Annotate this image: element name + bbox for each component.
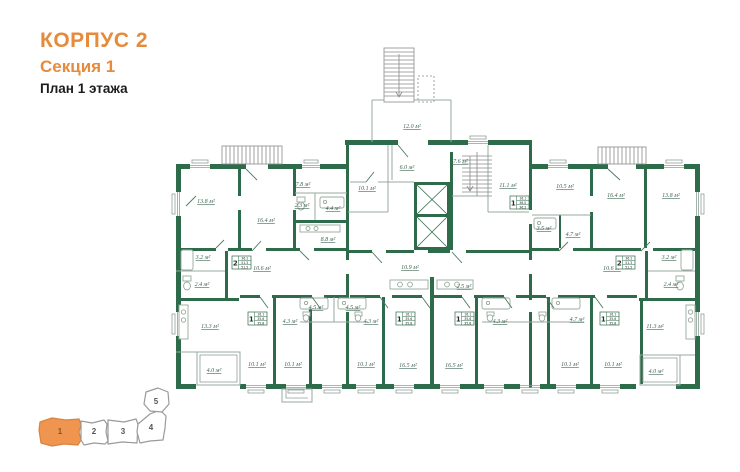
room-area-label: 4.5 м² — [309, 304, 324, 311]
entrance-ramp — [418, 76, 434, 102]
apartment-area-value: 51.5 — [241, 265, 248, 269]
room-area-label: 10.1 м² — [248, 362, 266, 368]
apartment-type-number: 1 — [249, 316, 254, 324]
room-area-label: 13.8 м² — [197, 199, 215, 205]
room-area-label: 4.7 м² — [570, 316, 585, 323]
apartment-area-value: 35.8 — [609, 321, 616, 325]
room-area-label: 2.4 м² — [195, 281, 210, 288]
apartment-area-value: 36.2 — [519, 205, 526, 209]
room-area-label: 10.6 м² — [253, 266, 271, 272]
door-swings — [186, 145, 650, 472]
apartment-tag[interactable]: 236.251.351.5 — [616, 256, 635, 269]
apartment-tag[interactable]: 116.135.635.8 — [396, 312, 415, 325]
apartment-tag[interactable]: 116.135.635.8 — [248, 312, 267, 325]
minimap-section-5-label: 5 — [154, 397, 159, 406]
apartment-type-number: 1 — [397, 316, 402, 324]
room-area-label: 11.3 м² — [646, 324, 663, 330]
room-area-label: 4.3 м² — [493, 318, 508, 325]
room-area-label: 16.4 м² — [257, 217, 275, 224]
floor-plan-page: КОРПУС 2 Секция 1 План 1 этажа — [0, 0, 740, 472]
left-entrance-stairs — [222, 146, 282, 164]
minimap: 1 2 3 4 5 — [39, 388, 169, 446]
room-area-label: 7.8 м² — [296, 182, 311, 188]
room-area-label: 8.8 м² — [321, 237, 336, 243]
room-area-label: 2.4 м² — [664, 281, 679, 288]
apartment-type-number: 2 — [233, 260, 238, 268]
room-area-label: 10.1 м² — [604, 362, 622, 368]
apartment-area-value: 35.8 — [405, 321, 412, 325]
room-area-label: 12.0 м² — [403, 124, 421, 130]
room-area-label: 4.4 м² — [326, 205, 341, 212]
room-area-label: 2.5 м² — [457, 284, 472, 290]
room-area-label: 4.3 м² — [283, 318, 298, 325]
room-area-label: 16.5 м² — [445, 363, 463, 369]
room-area-label: 3.2 м² — [661, 255, 677, 261]
apartment-area-value: 35.8 — [464, 321, 471, 325]
room-area-label: 2.3 м² — [295, 203, 310, 209]
room-area-label: 16.5 м² — [399, 363, 417, 369]
apartment-type-number: 1 — [601, 316, 606, 324]
minimap-section-3-label: 3 — [121, 427, 126, 436]
room-area-label: 4.0 м² — [649, 368, 664, 375]
room-area-label: 10.1 м² — [561, 362, 579, 368]
apartment-type-number: 1 — [511, 200, 516, 208]
room-area-label: 4.7 м² — [566, 231, 581, 238]
apartment-type-number: 1 — [456, 316, 461, 324]
cellar-entrance — [282, 389, 312, 402]
room-area-label: 4.5 м² — [346, 304, 361, 311]
right-entrance-stairs — [598, 147, 646, 164]
room-area-label: 10.1 м² — [357, 362, 375, 368]
apartment-tag[interactable]: 116.136.036.2 — [510, 196, 529, 209]
room-area-label: 10.9 м² — [401, 265, 419, 271]
minimap-section-2-label: 2 — [92, 427, 97, 436]
apartment-tag[interactable]: 116.135.635.8 — [455, 312, 474, 325]
apartment-tag[interactable]: 116.135.635.8 — [600, 312, 619, 325]
room-area-label: 10.5 м² — [556, 184, 574, 190]
room-area-label: 3.5 м² — [536, 226, 552, 232]
room-area-label: 17.6 м² — [450, 159, 468, 165]
room-area-label: 13.3 м² — [201, 324, 219, 330]
apartment-area-value: 51.5 — [625, 265, 632, 269]
room-area-label: 6.0 м² — [400, 165, 415, 171]
minimap-section-1-label: 1 — [58, 427, 63, 436]
room-area-label: 13.8 м² — [662, 193, 680, 199]
room-area-label: 10.1 м² — [284, 362, 302, 368]
room-area-label: 4.3 м² — [364, 318, 379, 325]
minimap-section-4-label: 4 — [149, 423, 154, 432]
room-area-label: 16.4 м² — [607, 192, 625, 199]
room-area-label: 3.2 м² — [195, 255, 211, 261]
room-area-label: 10.1 м² — [358, 186, 376, 192]
room-area-label: 11.1 м² — [499, 183, 516, 189]
apartment-type-number: 2 — [617, 260, 622, 268]
apartment-area-value: 35.8 — [257, 321, 264, 325]
room-area-label: 4.0 м² — [207, 367, 222, 374]
elevator-shaft — [414, 182, 450, 250]
floorplan-svg: 13.8 м²16.4 м²7.8 м²2.3 м²4.4 м²10.1 м²8… — [0, 0, 740, 472]
apartment-tag[interactable]: 236.251.351.5 — [232, 256, 251, 269]
